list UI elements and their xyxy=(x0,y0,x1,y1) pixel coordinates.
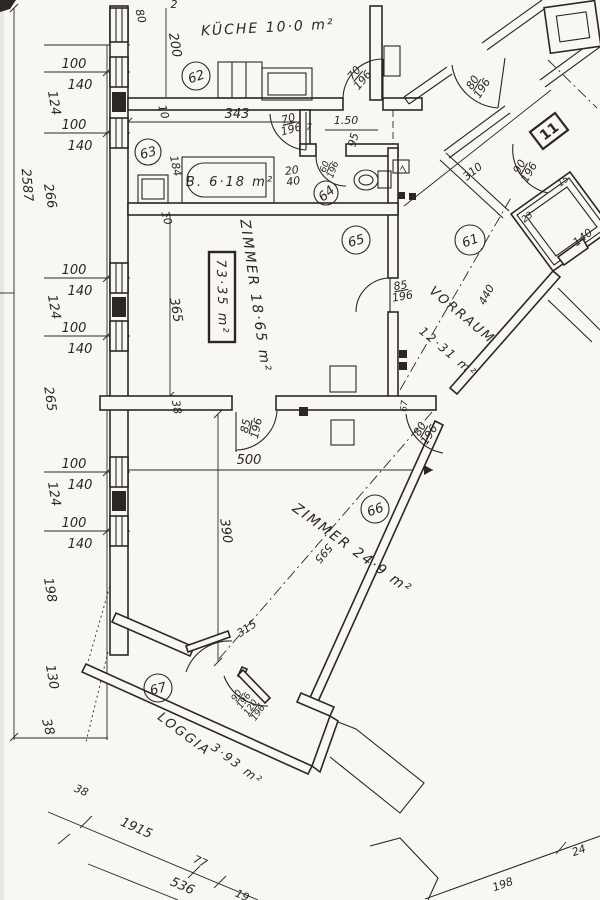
dim-1915: 1915 xyxy=(118,815,154,842)
wall-vorraum-west-b xyxy=(388,312,398,400)
wall-rooms-a xyxy=(100,396,232,410)
dim-2040: 2040 xyxy=(284,163,301,189)
dim-343: 343 xyxy=(225,107,250,122)
dim-440: 440 xyxy=(476,282,497,307)
dim-top-w: 80 xyxy=(132,8,148,25)
dim-h1: 140 xyxy=(68,78,93,93)
dim-536: 536 xyxy=(168,875,197,899)
dim-gap3: 124 xyxy=(44,294,63,321)
wall-kitchen-east xyxy=(370,6,382,100)
label-area-total: 73·35 m² xyxy=(213,259,231,335)
dim-gap6: 198 xyxy=(40,577,59,604)
kitchen-counter xyxy=(218,62,312,100)
circle-loggia: 67 xyxy=(148,680,169,699)
dim-10a: 10 xyxy=(155,103,171,120)
radiator-mark xyxy=(399,362,407,370)
dim-38: 38 xyxy=(38,717,57,737)
floorplan-scan: 11 62 63 64 65 61 66 67 KÜCHE 10·0 m² B.… xyxy=(0,0,600,900)
door-label-wc: 60196 xyxy=(318,157,342,180)
dim-h2: 140 xyxy=(68,139,93,154)
wall-kitchen-south-b xyxy=(383,98,422,110)
circle-vorraum: 61 xyxy=(460,232,481,252)
flue-block xyxy=(330,366,356,392)
dim-gap1: 124 xyxy=(44,90,63,117)
corner-room xyxy=(544,1,600,54)
dim-365: 365 xyxy=(166,297,185,324)
area-box: 73·35 m² xyxy=(209,252,235,342)
dim-w6: 100 xyxy=(62,516,87,531)
dim-h6: 140 xyxy=(68,537,93,552)
dim-390: 390 xyxy=(216,518,234,545)
dim-7a: 7 xyxy=(306,123,312,133)
dim-w3: 100 xyxy=(62,263,87,278)
wall-pier xyxy=(112,297,126,317)
dim-total: 2587 xyxy=(18,168,36,203)
door-label-stair: 80196 xyxy=(462,70,493,101)
door-arc-zimmer1 xyxy=(356,278,390,312)
circle-bad: 63 xyxy=(138,144,158,163)
dim-10b: 10 xyxy=(158,209,174,226)
circle-zimmer1: 65 xyxy=(346,232,366,251)
dim-150: 1.50 xyxy=(334,114,359,127)
dim-38c: 38 xyxy=(72,782,90,799)
dim-h5: 140 xyxy=(68,478,93,493)
circle-kueche: 62 xyxy=(186,68,207,88)
label-kueche: KÜCHE 10·0 m² xyxy=(201,15,335,40)
wall-pier xyxy=(112,491,126,511)
dim-310: 310 xyxy=(460,160,485,183)
dim-gap4: 265 xyxy=(40,386,58,413)
unit-number-box: 11 xyxy=(530,113,568,149)
dim-h3: 140 xyxy=(68,284,93,299)
wall-niche xyxy=(384,46,400,76)
dim-gap2: 266 xyxy=(40,183,59,210)
dim-19: 19 xyxy=(233,887,251,900)
dim-500: 500 xyxy=(237,453,262,468)
flue-block xyxy=(331,420,354,445)
dim-38b: 38 xyxy=(169,399,184,415)
door-labels: 70196 70196 60196 85196 85196 80196 8019… xyxy=(228,61,540,723)
dim-595: 595 xyxy=(312,541,335,565)
toilet xyxy=(354,170,391,190)
dim-67: 67 xyxy=(400,400,411,413)
dim-w4: 100 xyxy=(62,321,87,336)
walls xyxy=(82,0,600,899)
dim-gap5: 124 xyxy=(44,481,63,508)
door-label-bath: 70196 xyxy=(276,110,302,139)
label-zimmer1: ZIMMER 18·65 m² xyxy=(236,217,274,373)
dim-24: 24 xyxy=(570,842,588,859)
dim-w2: 100 xyxy=(62,118,87,133)
dim-198: 198 xyxy=(491,875,515,894)
label-bad: B. 6·18 m² xyxy=(186,175,274,190)
dim-200: 200 xyxy=(165,32,184,59)
label-vorraum-area: 12·31 m² xyxy=(416,324,479,380)
radiator-mark xyxy=(399,350,407,358)
dim-77: 77 xyxy=(191,853,209,871)
dim-w1: 100 xyxy=(62,57,87,72)
dim-130: 130 xyxy=(42,664,61,691)
dim-top-edge: 2 xyxy=(171,0,178,11)
dim-h4: 140 xyxy=(68,342,93,357)
door-label-zimmer2: 85196 xyxy=(237,414,265,440)
fixtures xyxy=(138,62,416,445)
circle-zimmer2: 66 xyxy=(365,501,386,521)
door-label-zimmer1: 85196 xyxy=(389,277,414,304)
dim-w5: 100 xyxy=(62,457,87,472)
floor-plan-svg: 11 62 63 64 65 61 66 67 KÜCHE 10·0 m² B.… xyxy=(0,0,600,900)
wall-pier xyxy=(112,92,126,112)
room-circles: 62 63 64 65 61 66 67 xyxy=(135,62,485,702)
